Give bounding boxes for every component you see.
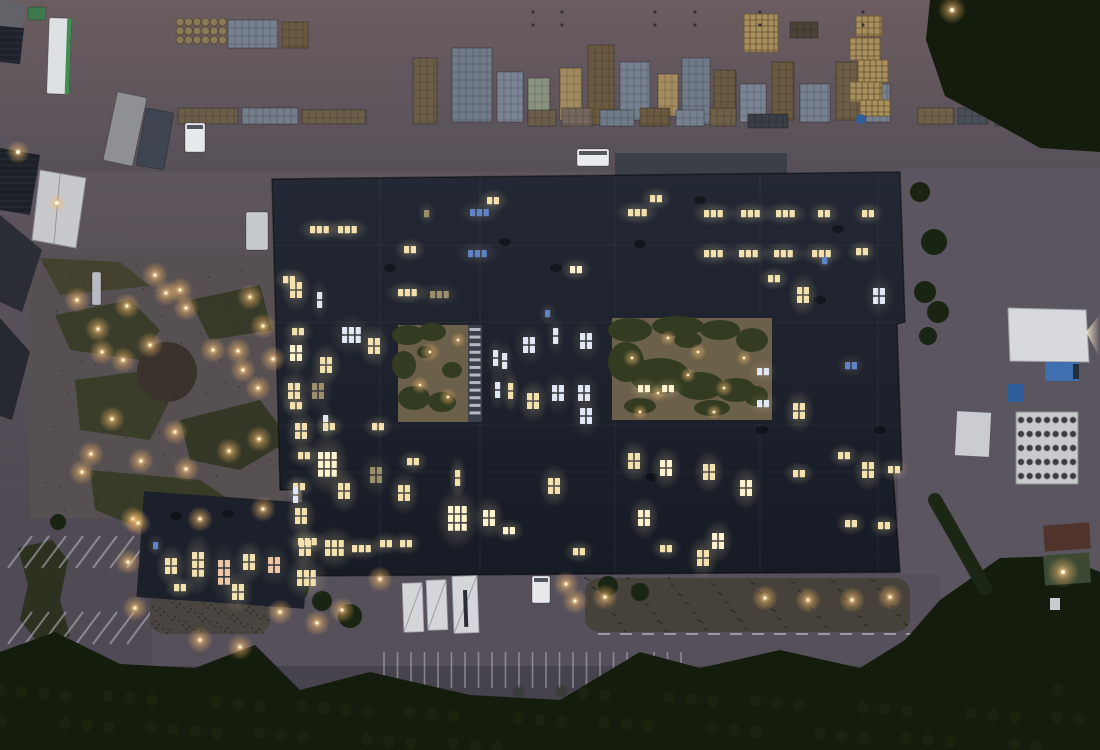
skylight-pane xyxy=(239,593,244,600)
speckle xyxy=(697,619,699,621)
skylight-pane xyxy=(873,288,878,295)
skylight-pane xyxy=(660,460,665,467)
bollard-lamp xyxy=(236,349,239,352)
canopy-texture xyxy=(448,710,460,722)
courtyard-lamp xyxy=(687,374,690,377)
roof-corner xyxy=(0,0,26,28)
skylight-pane xyxy=(293,487,298,494)
white-van-left xyxy=(185,123,205,152)
bollard-lamp xyxy=(178,288,181,291)
skylight-pane xyxy=(845,520,850,527)
bollard-lamp xyxy=(110,417,113,420)
bollard-lamp xyxy=(164,291,167,294)
canopy-texture xyxy=(383,735,395,747)
hvac-fan xyxy=(1061,445,1067,451)
skylight-pane xyxy=(462,506,467,513)
speckle xyxy=(221,609,223,611)
skylight-glow xyxy=(564,540,595,564)
speckle xyxy=(668,577,670,579)
speckle xyxy=(164,454,166,456)
bollard-lamp xyxy=(126,560,129,563)
courtyard-lamp xyxy=(631,357,634,360)
skylight-pane xyxy=(869,462,874,469)
speckle xyxy=(647,604,649,606)
skylight-pane xyxy=(462,524,467,531)
white-bench xyxy=(92,272,101,305)
green-bins xyxy=(28,7,46,20)
speckle xyxy=(737,618,739,620)
skylight-pane xyxy=(888,466,893,473)
white-tarp-small-body xyxy=(246,212,268,250)
skylight-pane xyxy=(165,567,170,574)
skylight-pane xyxy=(555,478,560,485)
bollard-lamp xyxy=(315,621,318,624)
skylight-pane xyxy=(747,489,752,496)
skylight-pane xyxy=(580,333,585,340)
shed-roof xyxy=(1043,522,1091,551)
speckle xyxy=(251,627,253,629)
walkway-stripe xyxy=(470,351,481,354)
speckle xyxy=(236,618,238,620)
speckle xyxy=(224,630,226,632)
canopy-texture xyxy=(146,694,158,706)
skylight-pane xyxy=(297,570,302,577)
skylight-glow xyxy=(651,537,682,561)
skylight-pane xyxy=(719,542,724,549)
canopy-texture xyxy=(987,709,999,721)
speckle xyxy=(44,264,46,266)
skylight-glow xyxy=(651,446,682,489)
courtyard-lamp xyxy=(713,411,716,414)
lane-dot xyxy=(653,23,656,26)
speckle xyxy=(824,625,826,627)
skylight-pane xyxy=(793,470,798,477)
green-bins-body xyxy=(28,7,46,20)
canopy-texture xyxy=(599,689,611,701)
hvac-fan xyxy=(1044,473,1050,479)
skylight-pane xyxy=(703,464,708,471)
speckle xyxy=(200,332,202,334)
skylight-pane xyxy=(411,246,416,253)
speckle xyxy=(142,288,144,290)
skylight-pane xyxy=(508,383,513,390)
speckle xyxy=(47,403,49,405)
canopy-texture xyxy=(361,733,373,745)
skylight-pane xyxy=(319,383,324,390)
speckle xyxy=(50,287,52,289)
shrub-blob xyxy=(50,514,66,530)
skylight-pane xyxy=(628,209,633,216)
courtyard-lamp xyxy=(697,351,700,354)
skylight-pane xyxy=(342,336,347,343)
speckle xyxy=(751,582,753,584)
skylight-pane xyxy=(268,566,273,573)
bollard-lamp xyxy=(271,357,274,360)
skylight-glow xyxy=(788,273,819,316)
lane-dot xyxy=(531,10,534,13)
barrel xyxy=(210,27,218,35)
skylight-pane xyxy=(349,336,354,343)
speckle xyxy=(240,622,242,624)
canopy-texture xyxy=(232,698,244,710)
skylight-pane xyxy=(642,209,647,216)
skylight-pane xyxy=(317,226,322,233)
skylight-pane xyxy=(304,570,309,577)
skylight-pane xyxy=(318,461,323,468)
speckle xyxy=(203,471,205,473)
skylight-pane xyxy=(527,402,532,409)
lane-dot xyxy=(861,23,864,26)
barrel xyxy=(210,18,218,26)
canopy-texture xyxy=(771,697,783,709)
bollard-lamp xyxy=(133,606,136,609)
hvac-fan xyxy=(1070,417,1076,423)
skylight-pane xyxy=(818,210,823,217)
skylight-pane xyxy=(312,392,317,399)
skylight-glow xyxy=(688,536,719,579)
aerial-photograph xyxy=(0,0,1100,750)
canopy-texture xyxy=(362,706,374,718)
speckle xyxy=(819,617,821,619)
skylight-pane xyxy=(548,487,553,494)
canopy-texture xyxy=(556,716,568,728)
skylight-pane xyxy=(757,400,762,407)
bollard-lamp xyxy=(806,598,809,601)
hvac-fan xyxy=(1018,473,1024,479)
speckle xyxy=(272,343,274,345)
skylight-glow xyxy=(311,278,329,321)
bollard-lamp xyxy=(378,577,381,580)
walkway-stripe xyxy=(470,411,481,414)
speckle xyxy=(117,493,119,495)
speckle xyxy=(154,620,156,622)
pallet-stack xyxy=(858,60,888,82)
hvac-fan xyxy=(1052,459,1058,465)
crate-stack xyxy=(748,114,788,128)
speckle xyxy=(214,299,216,301)
skylight-pane xyxy=(856,248,861,255)
skylight-pane xyxy=(332,452,337,459)
speckle xyxy=(241,270,243,272)
crate-stack xyxy=(640,108,670,126)
skylight-pane xyxy=(494,197,499,204)
skylight-pane xyxy=(863,248,868,255)
semi-trailer-white-green xyxy=(47,18,72,95)
canopy-texture xyxy=(253,727,265,739)
skylight-pane xyxy=(288,383,293,390)
courtyard-lamp xyxy=(639,411,642,414)
bollard-lamp xyxy=(763,596,766,599)
speckle xyxy=(626,577,628,579)
courtyard-bush xyxy=(418,323,446,341)
skylight-pane xyxy=(243,563,248,570)
skylight-pane xyxy=(304,579,309,586)
walkway-stripe xyxy=(470,396,481,399)
skylight-pane xyxy=(232,593,237,600)
blue-barrel xyxy=(856,114,866,124)
skylight-pane xyxy=(468,250,473,257)
speckle xyxy=(718,592,720,594)
crate-stack xyxy=(562,108,592,126)
skylight-pane xyxy=(325,452,330,459)
lane-dot xyxy=(693,10,696,13)
skylight-pane xyxy=(704,210,709,217)
barrel xyxy=(185,36,193,44)
canopy-texture xyxy=(318,702,330,714)
barrel xyxy=(193,18,201,26)
speckle xyxy=(180,342,182,344)
lane-dot xyxy=(653,10,656,13)
canopy-texture xyxy=(706,722,718,734)
hvac-fan xyxy=(1061,417,1067,423)
skylight-pane xyxy=(359,545,364,552)
skylight-pane xyxy=(764,368,769,375)
skylight-pane xyxy=(325,540,330,547)
hvac-fan xyxy=(1044,417,1050,423)
speckle xyxy=(645,603,647,605)
skylight-pane xyxy=(356,327,361,334)
skylight-pane xyxy=(405,289,410,296)
skylight-pane xyxy=(404,246,409,253)
skylight-pane xyxy=(800,412,805,419)
skylight-pane xyxy=(375,338,380,345)
shrub-blob xyxy=(919,327,937,345)
skylight-pane xyxy=(295,423,300,430)
skylight-pane xyxy=(448,524,453,531)
skylight-pane xyxy=(342,327,347,334)
skylight-pane xyxy=(790,210,795,217)
speckle xyxy=(210,604,212,606)
skylight-pane xyxy=(804,287,809,294)
skylight-pane xyxy=(317,301,322,308)
skylight-pane xyxy=(587,417,592,424)
hvac-fan xyxy=(1035,417,1041,423)
skylight-pane xyxy=(764,400,769,407)
speckle xyxy=(161,315,163,317)
speckle xyxy=(97,503,99,505)
bollard-lamp xyxy=(603,595,606,598)
speckle xyxy=(897,614,899,616)
speckle xyxy=(45,482,47,484)
speckle xyxy=(141,325,143,327)
speckle xyxy=(213,625,215,627)
skylight-pane xyxy=(530,346,535,353)
speckle xyxy=(186,628,188,630)
bollard-lamp xyxy=(80,470,83,473)
skylight-glow xyxy=(165,576,196,600)
skylight-pane xyxy=(398,485,403,492)
skylight-pane xyxy=(297,402,302,409)
skylight-pane xyxy=(218,578,223,585)
skylight-pane xyxy=(330,423,335,430)
barrel xyxy=(202,27,210,35)
speckle xyxy=(130,497,132,499)
speckle xyxy=(793,582,795,584)
skylight-pane xyxy=(181,584,186,591)
speckle xyxy=(150,487,152,489)
hvac-fan xyxy=(1044,431,1050,437)
skylight-pane xyxy=(793,403,798,410)
annex-roof xyxy=(615,153,787,176)
speckle xyxy=(899,615,901,617)
windshield xyxy=(579,151,607,155)
skylight-pane xyxy=(165,558,170,565)
speckle xyxy=(160,614,162,616)
speckle xyxy=(152,606,154,608)
skylight-pane xyxy=(838,452,843,459)
lane-dot xyxy=(758,23,761,26)
skylight-pane xyxy=(345,483,350,490)
skylight-pane xyxy=(753,250,758,257)
speckle xyxy=(244,626,246,628)
bollard-lamp xyxy=(198,517,201,520)
barrel xyxy=(176,36,184,44)
skylight-pane xyxy=(455,506,460,513)
bike-canopy xyxy=(402,583,424,633)
skylight-pane xyxy=(781,250,786,257)
bollard-lamp xyxy=(261,507,264,510)
skylight-pane xyxy=(845,362,850,369)
skylight-pane xyxy=(862,471,867,478)
white-van-top xyxy=(577,149,609,166)
skylight-pane xyxy=(578,385,583,392)
bollard-lamp xyxy=(257,437,260,440)
skylight-pane xyxy=(577,266,582,273)
speckle xyxy=(713,584,715,586)
skylight-pane xyxy=(553,328,558,335)
speckle xyxy=(666,630,668,632)
speckle xyxy=(612,613,614,615)
skylight-pane xyxy=(483,519,488,526)
roof-vent xyxy=(222,510,234,518)
speckle xyxy=(699,620,701,622)
solar-array-a xyxy=(0,26,24,64)
skylight-pane xyxy=(312,383,317,390)
skylight-pane xyxy=(740,480,745,487)
skylight-pane xyxy=(748,210,753,217)
skylight-glow xyxy=(748,392,779,416)
bollard-lamp xyxy=(139,459,142,462)
skylight-pane xyxy=(352,226,357,233)
canopy-texture xyxy=(534,714,546,726)
courtyard-bush xyxy=(442,362,462,378)
canopy-texture xyxy=(879,703,891,715)
skylight-pane xyxy=(302,432,307,439)
canopy-texture xyxy=(598,716,610,728)
skylight-pane xyxy=(398,494,403,501)
skylight-glow xyxy=(281,331,312,374)
bollard-lamp xyxy=(75,298,78,301)
skylight-pane xyxy=(660,545,665,552)
skylight-pane xyxy=(302,517,307,524)
bollard-lamp xyxy=(261,324,264,327)
skylight-pane xyxy=(218,569,223,576)
speckle xyxy=(179,603,181,605)
speckle xyxy=(725,601,727,603)
skylight-pane xyxy=(667,460,672,467)
hvac-fan xyxy=(1061,473,1067,479)
speckle xyxy=(158,624,160,626)
walkway-stripe xyxy=(470,389,481,392)
skylight-pane xyxy=(290,291,295,298)
skylight-pane xyxy=(320,357,325,364)
skylight-pane xyxy=(218,560,223,567)
skylight-pane xyxy=(368,347,373,354)
skylight-pane xyxy=(559,385,564,392)
skylight-pane xyxy=(455,470,460,477)
skylight-pane xyxy=(697,559,702,566)
skylight-pane xyxy=(822,257,827,264)
speckle xyxy=(197,448,199,450)
skylight-pane xyxy=(470,209,475,216)
speckle xyxy=(205,617,207,619)
aerial-photo-canvas xyxy=(0,0,1100,750)
skylight-pane xyxy=(430,291,435,298)
speckle xyxy=(194,612,196,614)
skylight-pane xyxy=(297,282,302,289)
skylight-pane xyxy=(405,485,410,492)
skylight-pane xyxy=(327,366,332,373)
skylight-pane xyxy=(318,470,323,477)
skylight-pane xyxy=(635,453,640,460)
speckle xyxy=(56,310,58,312)
skylight-pane xyxy=(345,226,350,233)
speckle xyxy=(744,627,746,629)
speckle xyxy=(229,617,231,619)
skylight-pane xyxy=(741,210,746,217)
skylight-glow xyxy=(395,238,426,262)
walkway-stripe xyxy=(470,343,481,346)
lane-dot xyxy=(861,10,864,13)
bike-canopy xyxy=(426,580,448,631)
speckle xyxy=(904,623,906,625)
skylight-pane xyxy=(290,354,295,361)
skylight-glow xyxy=(694,450,725,493)
barrel xyxy=(193,36,201,44)
skylight-pane xyxy=(325,549,330,556)
roof-vent xyxy=(756,426,768,434)
skylight-pane xyxy=(372,423,377,430)
speckle xyxy=(238,386,240,388)
skylight-glow xyxy=(653,377,684,401)
speckle xyxy=(269,459,271,461)
hvac-fan xyxy=(1026,417,1032,423)
dock-light xyxy=(16,150,20,154)
hvac-fan xyxy=(1018,459,1024,465)
hvac-fan xyxy=(1070,445,1076,451)
skylight-pane xyxy=(776,210,781,217)
courtyard-lamp xyxy=(429,351,432,354)
skylight-pane xyxy=(490,510,495,517)
skylight-pane xyxy=(172,567,177,574)
skylight-pane xyxy=(739,250,744,257)
skylight-pane xyxy=(718,250,723,257)
hvac-fan xyxy=(1070,459,1076,465)
skylight-glow xyxy=(809,202,840,226)
skylight-pane xyxy=(400,540,405,547)
skylight-pane xyxy=(530,337,535,344)
canopy-texture xyxy=(858,732,870,744)
skylight-pane xyxy=(657,195,662,202)
speckle xyxy=(593,587,595,589)
skylight-glow xyxy=(853,202,884,226)
skylight-pane xyxy=(885,522,890,529)
bollard-lamp xyxy=(211,348,214,351)
skylight-pane xyxy=(660,469,665,476)
speckle xyxy=(207,607,209,609)
canopy-texture xyxy=(211,727,223,739)
hvac-fan xyxy=(1052,431,1058,437)
